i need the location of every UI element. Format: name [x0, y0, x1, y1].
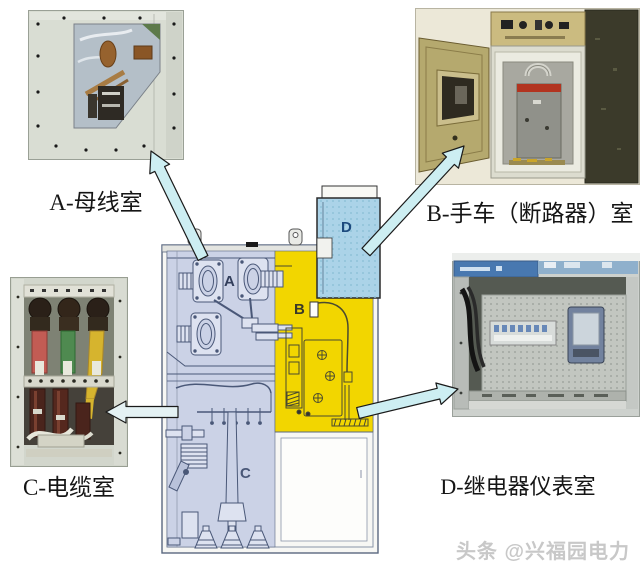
bottom-strip [26, 449, 112, 457]
top-bolt-strip [24, 285, 114, 297]
power-cable [226, 412, 238, 503]
breaker-room-photo-art [415, 8, 640, 185]
watermark: 头条 @兴福园电力 [456, 535, 630, 564]
top-beam [162, 245, 378, 252]
busbar-bushing [177, 313, 221, 355]
terminal-blocks [490, 321, 556, 345]
arrow-to-relay-photo [357, 383, 458, 418]
copper-busbar-end [100, 41, 116, 67]
busbar-cable-room-region [167, 251, 275, 547]
breaker-red-stripe [517, 84, 561, 92]
cable-terminals [29, 298, 109, 331]
breaker-room-photo [415, 8, 640, 185]
top-vent [246, 242, 258, 247]
secondary-wire [318, 302, 348, 372]
rear-lower-void [281, 438, 367, 541]
right-rail [114, 279, 126, 465]
truck-wheel [306, 412, 310, 416]
cable-room-internals [166, 383, 271, 548]
lifting-lugs [188, 229, 302, 245]
side-dark-panel [585, 10, 638, 183]
meter-window [573, 313, 599, 345]
relay-room-photo-art [452, 253, 640, 417]
left-rail [12, 279, 24, 465]
switchgear-infographic: A-母线室 [0, 0, 640, 572]
letter-c: C [240, 465, 251, 482]
support-insulators [168, 526, 269, 548]
meter-device [568, 307, 604, 363]
bottom-rail [469, 391, 626, 409]
letter-d: D [341, 219, 352, 236]
cable-room-label: C-电缆室 [4, 468, 134, 502]
insulator-stack [98, 86, 124, 120]
letter-b: B [294, 301, 305, 318]
earthing-switch-blade [169, 461, 189, 491]
middle-bolt-rail [24, 376, 114, 387]
breaker-room-region [275, 251, 373, 432]
busbar-bushing [238, 258, 283, 300]
truck-rail [332, 419, 368, 426]
hatched-block [287, 392, 299, 406]
breaker-bolts [314, 351, 335, 403]
open-door [419, 38, 489, 172]
panel-right-strip [166, 12, 182, 158]
cable-room-photo [10, 277, 128, 467]
breaker-truck [275, 266, 373, 432]
relay-room-photo [452, 253, 640, 417]
ct-coil [181, 444, 207, 468]
relay-box [317, 186, 380, 298]
copper-busbar-block [134, 46, 152, 59]
breaker-front-panel [517, 84, 561, 158]
cable-room-photo-art [10, 277, 128, 467]
door-knob [453, 136, 458, 141]
busbar-bushing [179, 260, 223, 302]
busbar-room-internals [167, 251, 292, 547]
busbar-room-photo [28, 10, 184, 160]
relay-box-notch [317, 238, 332, 258]
busbar-room-photo-art [28, 10, 184, 160]
busbar-room-label: A-母线室 [18, 183, 174, 217]
top-white-band [452, 253, 640, 261]
branch-drops [211, 408, 262, 424]
relay-room-label: D-继电器仪表室 [418, 469, 618, 501]
panel-top-strip [30, 12, 182, 20]
right-frame [626, 277, 638, 409]
isolating-contacts [242, 318, 292, 340]
breaker-room-label: B-手车（断路器）室 [420, 194, 640, 228]
relay-box-cap [322, 186, 377, 198]
cable-termination [218, 503, 246, 521]
letter-a: A [224, 273, 235, 290]
cabinet-shell [162, 229, 378, 553]
bottom-support [38, 435, 84, 447]
truck-wheel [297, 410, 301, 414]
top-control-strip [491, 12, 585, 46]
breaker-cell-opening [491, 46, 585, 178]
